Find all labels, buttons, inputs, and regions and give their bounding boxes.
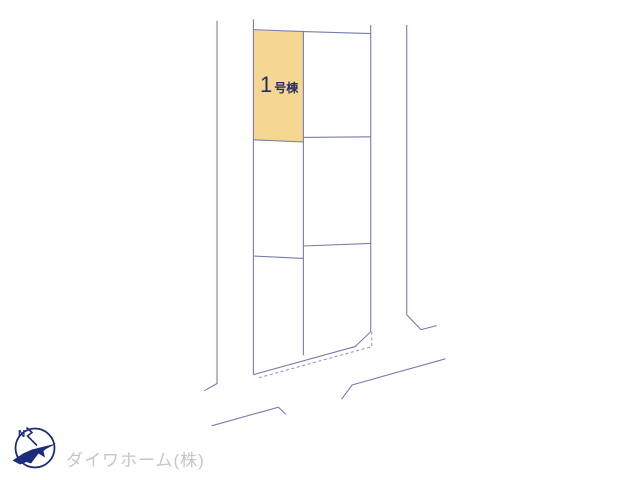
east-boundary-line [407, 25, 437, 330]
lot-1-suffix: 号棟 [274, 82, 298, 94]
road-edge-southeast [342, 359, 446, 399]
lot-east-boundary-line [355, 25, 370, 346]
road-edge-southwest [212, 407, 286, 426]
compass-north-label: N [18, 429, 25, 440]
site-plan-page: 1 号棟 N ダイワホーム(株) [0, 0, 640, 480]
west-column-divider [253, 256, 303, 258]
company-credit: N ダイワホーム(株) [10, 423, 205, 471]
lot-1-number: 1 [260, 74, 272, 96]
company-name: ダイワホーム(株) [66, 446, 205, 471]
east-column-lower-divider [303, 243, 370, 246]
site-plan-drawing [0, 0, 640, 480]
east-column-upper-divider [303, 137, 370, 138]
north-compass-logo: N [10, 423, 58, 471]
lot-1-label: 1 号棟 [260, 74, 298, 96]
south-setback-dashed-line [257, 332, 372, 378]
west-boundary-line [204, 21, 217, 391]
south-boundary-line [253, 346, 356, 374]
